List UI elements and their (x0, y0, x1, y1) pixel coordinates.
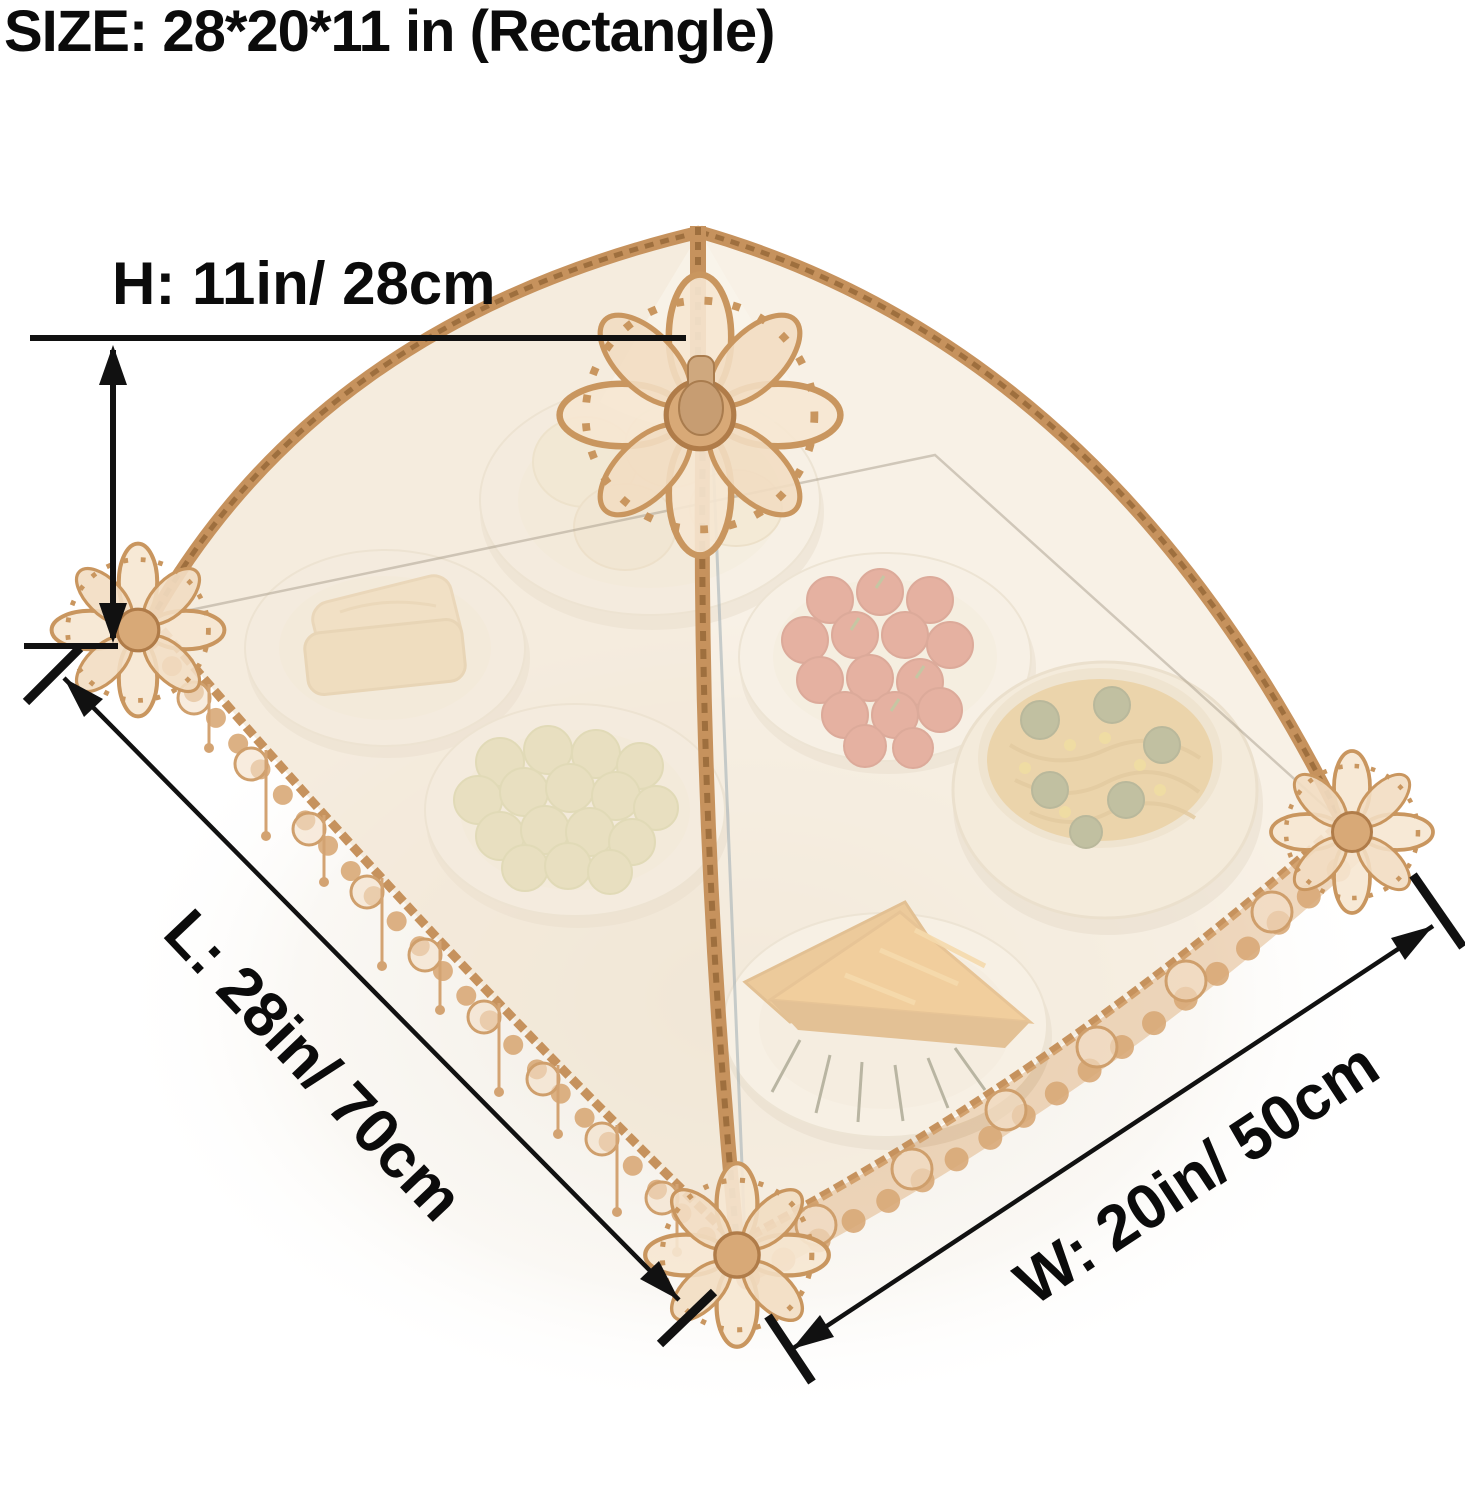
size-title: SIZE: 28*20*11 in (Rectangle) (4, 2, 774, 63)
height-label: H: 11in/ 28cm (112, 252, 496, 315)
food-cover-photo (0, 0, 1465, 1500)
product-dimension-image: SIZE: 28*20*11 in (Rectangle) H: 11in/ 2… (0, 0, 1465, 1500)
